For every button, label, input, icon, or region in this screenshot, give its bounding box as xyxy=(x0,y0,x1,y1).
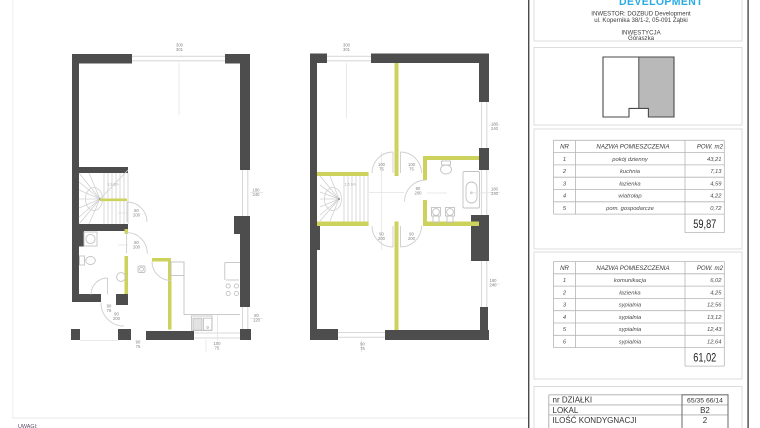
svg-text:240: 240 xyxy=(253,192,261,197)
svg-text:DEVELOPMENT: DEVELOPMENT xyxy=(619,0,703,8)
svg-text:sypialnia: sypialnia xyxy=(619,315,642,321)
svg-text:59,87: 59,87 xyxy=(693,217,716,231)
svg-text:sypialnia: sypialnia xyxy=(619,327,642,333)
svg-text:NR: NR xyxy=(560,144,569,151)
svg-text:POW. m2: POW. m2 xyxy=(697,144,724,151)
svg-text:12,64: 12,64 xyxy=(707,340,722,346)
svg-text:POW. m2: POW. m2 xyxy=(697,265,724,272)
svg-text:sypialnia: sypialnia xyxy=(619,340,642,346)
svg-text:ul. Kopernika 38/1-2, 05-091 Z: ul. Kopernika 38/1-2, 05-091 Ząbki xyxy=(594,17,688,24)
svg-text:75: 75 xyxy=(215,346,220,351)
svg-text:61,02: 61,02 xyxy=(693,350,716,364)
svg-text:75: 75 xyxy=(136,344,141,349)
svg-text:4,22: 4,22 xyxy=(710,194,722,200)
svg-text:NR: NR xyxy=(560,265,569,272)
svg-text:łazienka: łazienka xyxy=(619,290,641,296)
svg-text:65/35 66/14: 65/35 66/14 xyxy=(687,398,723,405)
svg-text:75: 75 xyxy=(360,346,365,351)
svg-text:12,56: 12,56 xyxy=(707,303,722,309)
svg-text:200: 200 xyxy=(415,191,423,196)
svg-text:75: 75 xyxy=(409,167,414,172)
svg-text:200: 200 xyxy=(408,236,416,241)
svg-text:13,12: 13,12 xyxy=(707,315,722,321)
svg-text:301: 301 xyxy=(343,47,351,52)
svg-text:1: 1 xyxy=(563,157,566,163)
svg-text:200: 200 xyxy=(133,245,141,250)
svg-text:1: 1 xyxy=(563,278,566,284)
svg-text:łazienka: łazienka xyxy=(619,181,641,187)
svg-text:NAZWA POMIESZCZENIA: NAZWA POMIESZCZENIA xyxy=(596,144,669,151)
svg-text:4,25: 4,25 xyxy=(710,290,722,296)
svg-text:200: 200 xyxy=(113,316,121,321)
svg-text:75: 75 xyxy=(379,167,384,172)
svg-text:pokój dzienny: pokój dzienny xyxy=(611,157,649,163)
svg-text:nr DZIAŁKI: nr DZIAŁKI xyxy=(553,396,593,405)
svg-text:240: 240 xyxy=(490,283,498,288)
svg-text:43,21: 43,21 xyxy=(707,157,722,163)
svg-text:LOKAL: LOKAL xyxy=(553,406,579,415)
svg-text:2: 2 xyxy=(703,416,708,425)
svg-text:kuchnia: kuchnia xyxy=(620,169,641,175)
svg-text:4: 4 xyxy=(563,194,566,200)
svg-text:240: 240 xyxy=(491,126,499,131)
svg-text:wiatrołap: wiatrołap xyxy=(618,194,642,200)
svg-text:sypialnia: sypialnia xyxy=(619,303,642,309)
svg-text:200: 200 xyxy=(378,236,386,241)
svg-text:B2: B2 xyxy=(700,406,710,415)
svg-text:0,72: 0,72 xyxy=(710,206,722,212)
svg-text:75: 75 xyxy=(107,308,112,313)
svg-text:6,02: 6,02 xyxy=(710,278,722,284)
svg-text:ILOŚĆ KONDYGNACJI: ILOŚĆ KONDYGNACJI xyxy=(553,416,637,425)
svg-text:Góraszka: Góraszka xyxy=(628,35,655,42)
svg-text:4: 4 xyxy=(563,315,566,321)
svg-text:1,5 1m: 1,5 1m xyxy=(345,183,356,187)
svg-text:120: 120 xyxy=(253,318,261,323)
svg-text:4,59: 4,59 xyxy=(710,181,722,187)
svg-text:12,43: 12,43 xyxy=(707,327,722,333)
svg-text:7,13: 7,13 xyxy=(710,169,722,175)
svg-text:pom. gospodarcze: pom. gospodarcze xyxy=(605,206,654,212)
svg-text:240: 240 xyxy=(491,191,499,196)
svg-text:200: 200 xyxy=(133,213,141,218)
svg-text:NAZWA POMIESZCZENIA: NAZWA POMIESZCZENIA xyxy=(596,265,669,272)
svg-text:1,9 1m: 1,9 1m xyxy=(108,183,119,187)
svg-text:komunikacja: komunikacja xyxy=(614,278,647,284)
svg-text:UWAGI:: UWAGI: xyxy=(18,424,38,428)
svg-text:301: 301 xyxy=(176,47,184,52)
